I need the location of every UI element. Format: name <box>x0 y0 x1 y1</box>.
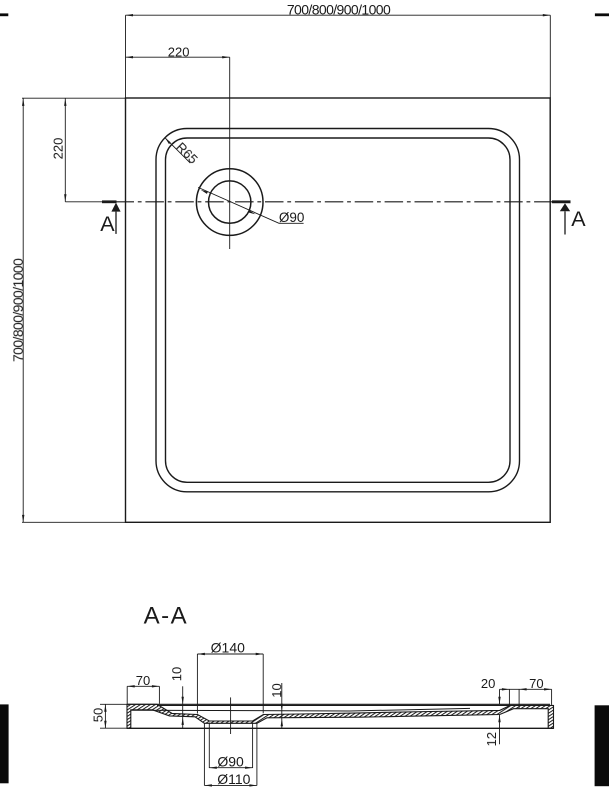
svg-text:700/800/900/1000: 700/800/900/1000 <box>287 2 391 18</box>
svg-text:220: 220 <box>168 45 190 60</box>
svg-text:700/800/900/1000: 700/800/900/1000 <box>10 258 26 362</box>
svg-text:10: 10 <box>169 667 184 681</box>
svg-text:220: 220 <box>51 138 66 160</box>
svg-text:12: 12 <box>484 732 499 746</box>
svg-text:Ø90: Ø90 <box>279 210 305 225</box>
svg-text:A: A <box>100 212 115 236</box>
svg-text:10: 10 <box>269 683 284 697</box>
svg-text:A-A: A-A <box>144 603 189 630</box>
svg-text:A: A <box>571 207 586 231</box>
svg-text:70: 70 <box>529 676 543 691</box>
svg-text:Ø90: Ø90 <box>217 754 244 770</box>
svg-text:Ø110: Ø110 <box>217 771 250 787</box>
svg-text:70: 70 <box>136 673 150 688</box>
svg-text:20: 20 <box>481 676 495 691</box>
svg-text:50: 50 <box>91 708 106 722</box>
svg-text:Ø140: Ø140 <box>211 639 245 655</box>
